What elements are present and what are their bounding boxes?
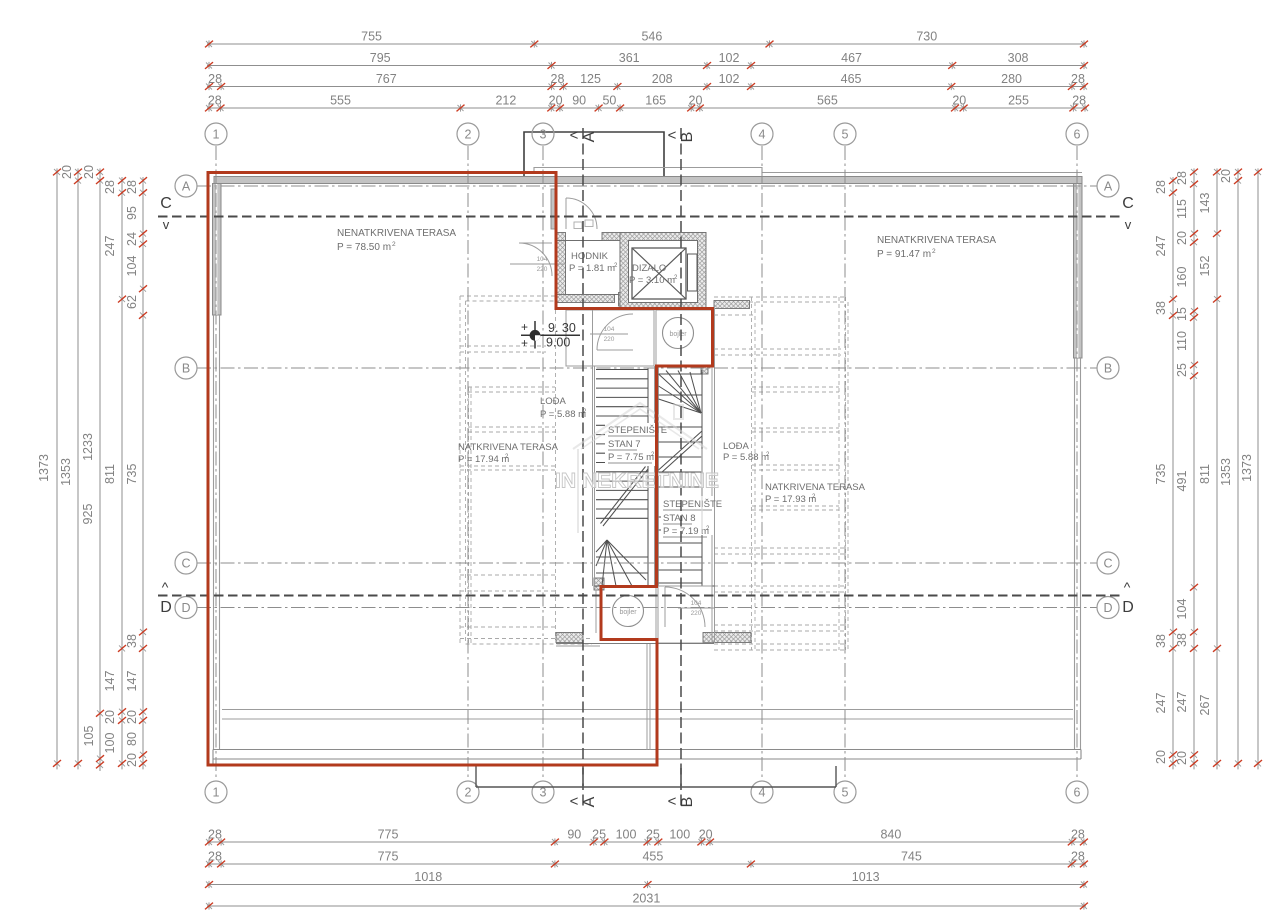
svg-text:104: 104 — [537, 256, 548, 263]
svg-text:B: B — [679, 797, 696, 808]
svg-text:100: 100 — [616, 828, 637, 842]
svg-text:255: 255 — [1008, 94, 1029, 108]
svg-text:80: 80 — [125, 732, 139, 746]
svg-text:467: 467 — [841, 51, 862, 65]
svg-text:20: 20 — [103, 710, 117, 724]
svg-text:143: 143 — [1198, 193, 1212, 214]
svg-text:90: 90 — [572, 94, 586, 108]
svg-text:925: 925 — [81, 504, 95, 525]
svg-text:28: 28 — [1071, 72, 1085, 86]
svg-text:DIZALO: DIZALO — [632, 263, 666, 274]
svg-text:28: 28 — [103, 180, 117, 194]
svg-text:104: 104 — [125, 256, 139, 277]
svg-text:bojler: bojler — [669, 331, 687, 338]
svg-text:745: 745 — [901, 850, 922, 864]
svg-text:220: 220 — [691, 610, 702, 617]
svg-text:P = 91.47 m: P = 91.47 m — [877, 249, 931, 260]
svg-text:735: 735 — [125, 464, 139, 485]
svg-text:208: 208 — [652, 72, 673, 86]
svg-text:220: 220 — [537, 266, 548, 273]
svg-text:NATKRIVENA TERASA: NATKRIVENA TERASA — [458, 442, 559, 453]
svg-text:840: 840 — [880, 828, 901, 842]
svg-text:1: 1 — [213, 786, 220, 800]
svg-text:115: 115 — [1175, 199, 1189, 219]
svg-text:B: B — [679, 132, 696, 143]
svg-text:5: 5 — [842, 128, 849, 142]
svg-text:28: 28 — [551, 72, 565, 86]
svg-text:2: 2 — [465, 786, 472, 800]
svg-text:28: 28 — [208, 850, 222, 864]
svg-text:28: 28 — [208, 72, 222, 86]
svg-text:565: 565 — [817, 94, 838, 108]
svg-text:P = 3.10 m: P = 3.10 m — [629, 275, 675, 286]
svg-text:20: 20 — [60, 165, 74, 179]
svg-text:STAN 7: STAN 7 — [608, 439, 641, 450]
svg-text:A: A — [182, 180, 191, 194]
svg-text:28: 28 — [1071, 850, 1085, 864]
svg-text:2031: 2031 — [632, 892, 660, 906]
svg-text:220: 220 — [604, 336, 615, 343]
svg-text:20: 20 — [1219, 169, 1233, 183]
svg-text:50: 50 — [602, 94, 616, 108]
svg-text:38: 38 — [1154, 301, 1168, 315]
svg-text:1373: 1373 — [1240, 454, 1254, 482]
svg-text:20: 20 — [549, 94, 563, 108]
svg-text:20: 20 — [699, 828, 713, 842]
svg-text:100: 100 — [103, 733, 117, 754]
svg-text:P = 7.75 m: P = 7.75 m — [608, 452, 654, 463]
svg-text:20: 20 — [125, 710, 139, 724]
svg-text:20: 20 — [125, 753, 139, 767]
svg-text:775: 775 — [378, 828, 399, 842]
svg-text:811: 811 — [1198, 464, 1212, 484]
svg-text:1: 1 — [213, 128, 220, 142]
svg-text:STEPENIŠTE: STEPENIŠTE — [663, 499, 722, 510]
svg-text:28: 28 — [208, 94, 222, 108]
svg-text:D: D — [1122, 599, 1134, 616]
svg-text:104: 104 — [604, 326, 615, 333]
svg-text:28: 28 — [1154, 180, 1168, 194]
svg-text:1353: 1353 — [1219, 458, 1233, 486]
svg-text:4: 4 — [759, 128, 766, 142]
svg-text:147: 147 — [103, 671, 117, 692]
svg-text:95: 95 — [125, 206, 139, 220]
svg-text:IN NEKRETNINE: IN NEKRETNINE — [555, 470, 719, 493]
svg-text:5: 5 — [842, 786, 849, 800]
svg-text:2: 2 — [392, 241, 396, 248]
svg-text:NENATKRIVENA TERASA: NENATKRIVENA TERASA — [337, 228, 456, 239]
svg-text:NENATKRIVENA TERASA: NENATKRIVENA TERASA — [877, 235, 996, 246]
svg-text:100: 100 — [669, 828, 690, 842]
svg-text:A: A — [581, 796, 598, 807]
svg-text:152: 152 — [1198, 256, 1212, 277]
svg-text:LOĐA: LOĐA — [540, 396, 567, 407]
svg-text:212: 212 — [495, 94, 516, 108]
svg-text:3: 3 — [540, 128, 547, 142]
svg-text:811: 811 — [103, 464, 117, 484]
svg-text:104: 104 — [1175, 599, 1189, 620]
svg-text:2: 2 — [465, 128, 472, 142]
svg-text:125: 125 — [580, 72, 601, 86]
svg-text:25: 25 — [1175, 363, 1189, 377]
svg-text:555: 555 — [330, 94, 351, 108]
svg-text:<: < — [570, 127, 579, 144]
svg-text:B: B — [182, 362, 190, 376]
svg-text:102: 102 — [719, 51, 740, 65]
svg-text:LOĐA: LOĐA — [723, 441, 750, 452]
svg-text:20: 20 — [82, 165, 96, 179]
svg-text:730: 730 — [916, 30, 937, 44]
svg-text:P = 1.81 m: P = 1.81 m — [569, 263, 615, 274]
svg-text:160: 160 — [1175, 267, 1189, 288]
svg-text:24: 24 — [125, 232, 139, 246]
svg-text:9. 30: 9. 30 — [548, 321, 576, 335]
svg-text:1018: 1018 — [414, 870, 442, 884]
svg-text:38: 38 — [1154, 634, 1168, 648]
svg-text:147: 147 — [125, 671, 139, 692]
svg-text:28: 28 — [1072, 94, 1086, 108]
svg-text:104: 104 — [691, 600, 702, 607]
svg-text:20: 20 — [1175, 231, 1189, 245]
svg-text:25: 25 — [646, 828, 660, 842]
svg-text:1373: 1373 — [37, 454, 51, 482]
svg-text:20: 20 — [1154, 750, 1168, 764]
svg-text:2: 2 — [932, 248, 936, 255]
svg-text:P = 17.93 m: P = 17.93 m — [765, 494, 816, 505]
svg-text:bojler: bojler — [619, 609, 637, 616]
svg-text:308: 308 — [1008, 51, 1029, 65]
svg-text:165: 165 — [645, 94, 666, 108]
svg-text:38: 38 — [1175, 633, 1189, 647]
svg-text:25: 25 — [592, 828, 606, 842]
svg-text:465: 465 — [841, 72, 862, 86]
svg-text:735: 735 — [1154, 464, 1168, 485]
svg-text:491: 491 — [1175, 471, 1189, 492]
svg-text:HODNIK: HODNIK — [571, 251, 609, 262]
svg-text:28: 28 — [1175, 171, 1189, 185]
svg-text:6: 6 — [1074, 786, 1081, 800]
svg-text:9.00: 9.00 — [546, 336, 570, 350]
svg-text:C: C — [1103, 557, 1112, 571]
svg-text:P = 17.94 m: P = 17.94 m — [458, 454, 509, 465]
svg-text:28: 28 — [208, 828, 222, 842]
svg-text:6: 6 — [1074, 128, 1081, 142]
svg-text:STEPENIŠTE: STEPENIŠTE — [608, 425, 667, 436]
svg-text:105: 105 — [82, 726, 96, 747]
svg-text:C: C — [181, 557, 190, 571]
svg-text:^: ^ — [1124, 579, 1131, 595]
svg-text:1233: 1233 — [81, 433, 95, 461]
svg-text:C: C — [1122, 195, 1134, 212]
svg-text:D: D — [1103, 601, 1112, 615]
svg-text:20: 20 — [689, 94, 703, 108]
svg-text:455: 455 — [642, 850, 663, 864]
svg-text:C: C — [160, 195, 172, 212]
svg-text:767: 767 — [376, 72, 397, 86]
svg-text:<: < — [668, 793, 677, 810]
svg-text:247: 247 — [1175, 692, 1189, 713]
svg-text:267: 267 — [1198, 695, 1212, 716]
svg-text:361: 361 — [619, 51, 640, 65]
svg-text:102: 102 — [719, 72, 740, 86]
svg-text:247: 247 — [1154, 693, 1168, 714]
svg-text:v: v — [1125, 217, 1132, 232]
svg-text:775: 775 — [378, 850, 399, 864]
svg-text:D: D — [181, 601, 190, 615]
svg-text:B: B — [1104, 362, 1112, 376]
svg-text:<: < — [668, 127, 677, 144]
svg-text:P = 5.88 m: P = 5.88 m — [540, 409, 586, 420]
svg-text:90: 90 — [567, 828, 581, 842]
svg-text:110: 110 — [1175, 331, 1189, 351]
svg-text:v: v — [163, 217, 170, 232]
svg-text:20: 20 — [952, 94, 966, 108]
svg-text:247: 247 — [103, 236, 117, 257]
svg-text:^: ^ — [162, 579, 169, 595]
svg-text:A: A — [1104, 180, 1113, 194]
svg-text:247: 247 — [1154, 236, 1168, 257]
svg-text:28: 28 — [125, 180, 139, 194]
svg-text:546: 546 — [641, 30, 662, 44]
svg-text:38: 38 — [125, 634, 139, 648]
svg-text:795: 795 — [370, 51, 391, 65]
svg-text:<: < — [570, 793, 579, 810]
svg-text:15: 15 — [1175, 307, 1189, 321]
svg-text:+: + — [521, 320, 528, 334]
svg-text:+: + — [521, 336, 528, 350]
svg-text:755: 755 — [361, 30, 382, 44]
svg-text:D: D — [160, 599, 172, 616]
svg-text:20: 20 — [1175, 751, 1189, 765]
svg-text:NATKRIVENA TERASA: NATKRIVENA TERASA — [765, 482, 866, 493]
svg-text:STAN 8: STAN 8 — [663, 513, 696, 524]
svg-text:P = 78.50 m: P = 78.50 m — [337, 242, 391, 253]
svg-text:1013: 1013 — [852, 870, 880, 884]
svg-text:A: A — [581, 131, 598, 142]
svg-text:280: 280 — [1001, 72, 1022, 86]
svg-text:28: 28 — [1071, 828, 1085, 842]
svg-text:1353: 1353 — [59, 458, 73, 486]
svg-text:62: 62 — [125, 295, 139, 309]
